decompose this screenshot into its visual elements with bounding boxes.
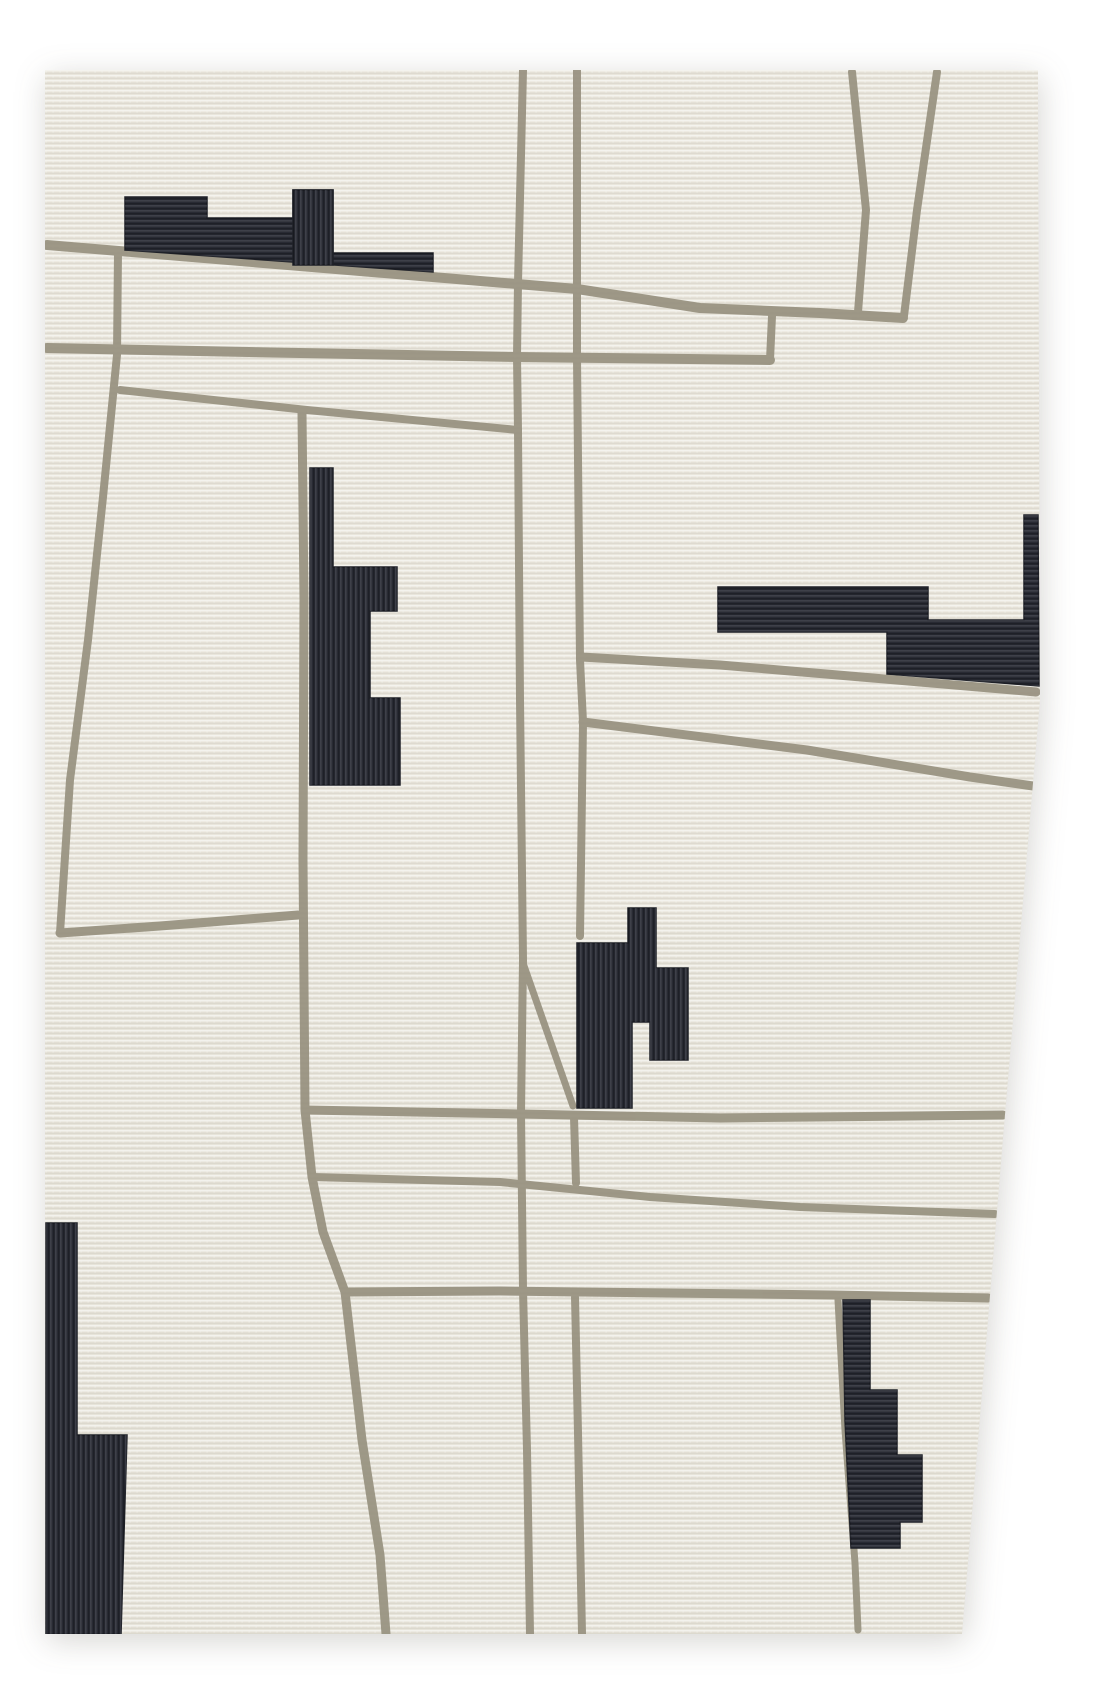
product-photo xyxy=(0,0,1104,1704)
rug-image xyxy=(0,0,1104,1704)
road-line-center-vertical-east-mid xyxy=(574,1117,576,1183)
building-block-top-left-tower-ribs xyxy=(293,190,333,265)
rug-pattern xyxy=(45,70,1040,1704)
road-line-top-road-connector xyxy=(770,316,772,360)
